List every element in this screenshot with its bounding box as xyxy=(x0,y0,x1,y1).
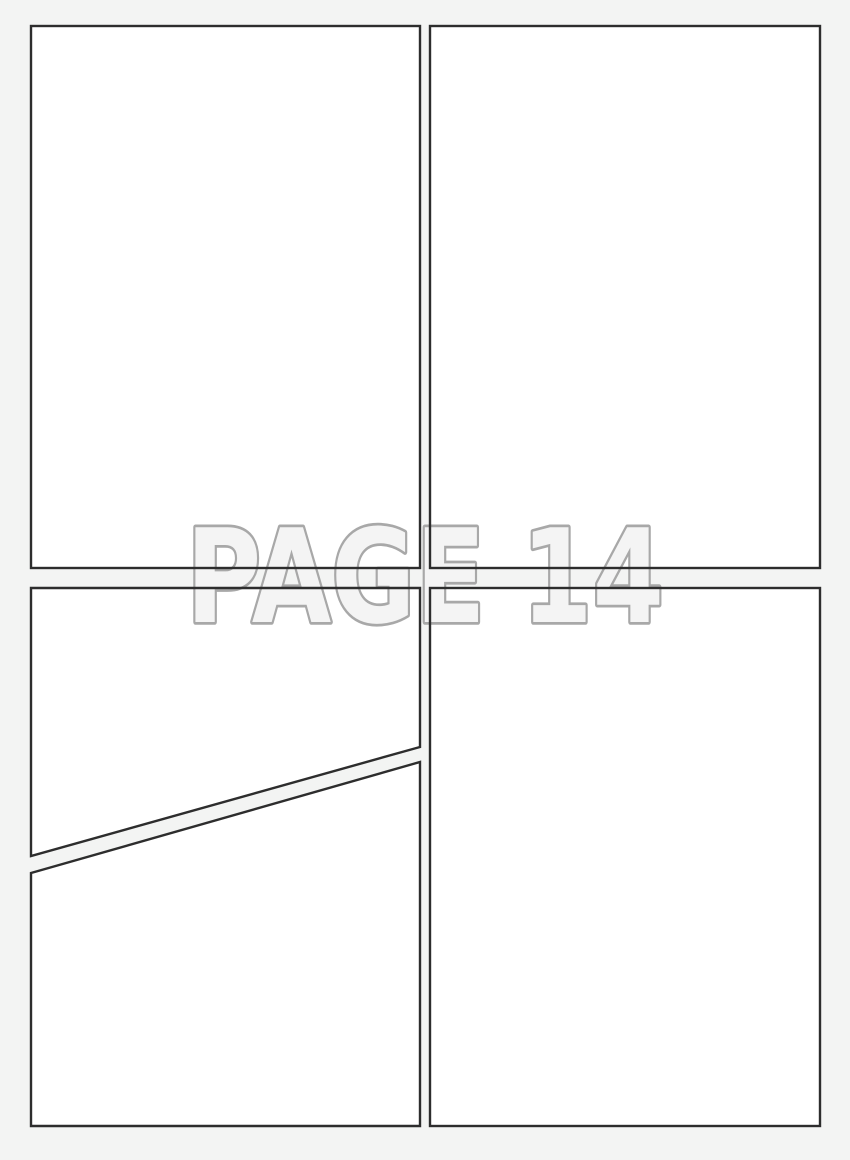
panel-top-left xyxy=(31,26,420,568)
panel-bottom-right xyxy=(430,588,820,1126)
comic-page-canvas: PAGE 14 xyxy=(0,0,850,1160)
panel-top-right xyxy=(430,26,820,568)
page-number-label: PAGE 14 xyxy=(186,501,664,653)
comic-page-template: PAGE 14 xyxy=(0,0,850,1160)
